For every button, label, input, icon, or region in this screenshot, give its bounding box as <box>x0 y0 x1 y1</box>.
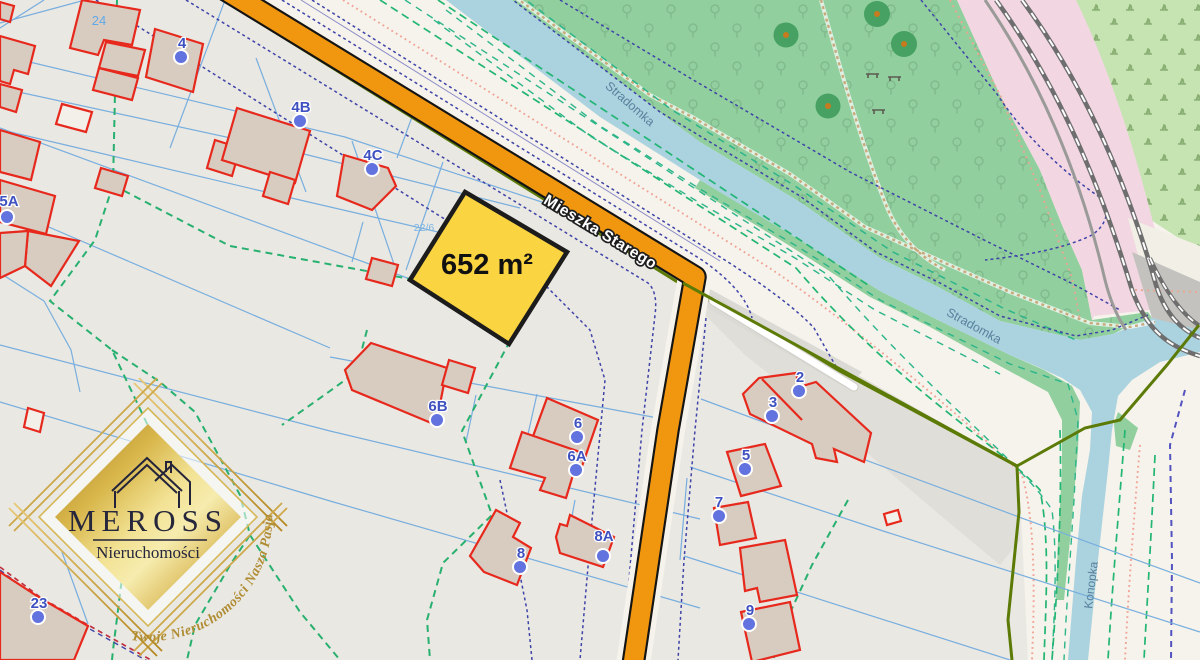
svg-text:2: 2 <box>796 369 804 386</box>
svg-text:6: 6 <box>574 415 582 432</box>
svg-text:6B: 6B <box>428 398 447 415</box>
svg-text:8A: 8A <box>594 528 613 545</box>
svg-text:3: 3 <box>769 394 777 411</box>
svg-text:652 m²: 652 m² <box>441 249 533 281</box>
svg-text:4C: 4C <box>363 147 382 164</box>
svg-text:7: 7 <box>715 494 723 511</box>
svg-text:4B: 4B <box>291 99 310 116</box>
svg-text:MEROSS: MEROSS <box>68 503 228 538</box>
svg-text:8: 8 <box>517 545 525 562</box>
svg-text:22/6: 22/6 <box>414 222 435 234</box>
svg-text:Nieruchomości: Nieruchomości <box>96 543 200 562</box>
svg-text:5: 5 <box>742 447 750 464</box>
svg-text:23: 23 <box>31 595 48 612</box>
svg-text:4: 4 <box>178 35 187 52</box>
svg-text:5A: 5A <box>0 193 19 210</box>
svg-text:9: 9 <box>746 602 754 619</box>
svg-text:24: 24 <box>92 13 106 28</box>
svg-text:6A: 6A <box>567 448 586 465</box>
